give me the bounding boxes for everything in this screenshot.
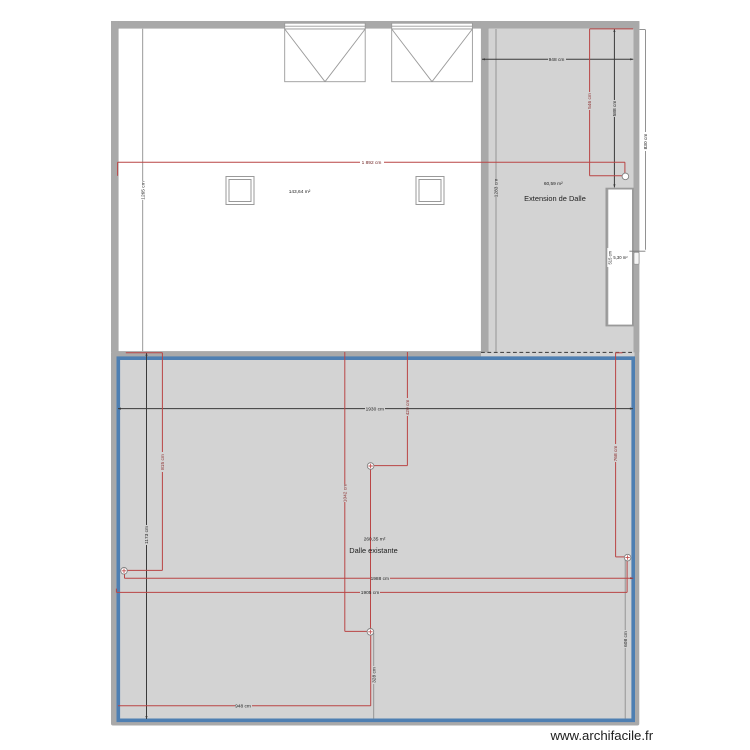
- svg-text:588 cm: 588 cm: [612, 101, 618, 117]
- svg-text:1265 cm: 1265 cm: [140, 181, 146, 199]
- svg-text:1173 cm: 1173 cm: [144, 526, 150, 544]
- svg-text:www.archifacile.fr: www.archifacile.fr: [550, 728, 654, 743]
- svg-text:60,59 m²: 60,59 m²: [544, 181, 563, 187]
- svg-text:1042 cm: 1042 cm: [342, 484, 348, 502]
- svg-text:1 892 cm: 1 892 cm: [362, 160, 382, 166]
- svg-text:Dalle existante: Dalle existante: [349, 546, 397, 555]
- svg-text:948 cm: 948 cm: [235, 703, 251, 709]
- svg-text:Extension de Dalle: Extension de Dalle: [524, 194, 586, 203]
- svg-text:815 cm: 815 cm: [160, 454, 166, 470]
- svg-text:260,35 m²: 260,35 m²: [364, 537, 386, 543]
- svg-text:768 cm: 768 cm: [613, 446, 619, 462]
- svg-text:948 cm: 948 cm: [549, 57, 565, 63]
- svg-text:1988 cm: 1988 cm: [371, 576, 389, 582]
- svg-text:830 cm: 830 cm: [643, 134, 649, 150]
- svg-text:420 cm: 420 cm: [405, 400, 411, 416]
- svg-text:1930 cm: 1930 cm: [366, 406, 384, 412]
- svg-text:5,30 m²: 5,30 m²: [613, 255, 628, 260]
- svg-text:1905 cm: 1905 cm: [361, 590, 379, 596]
- svg-text:1283 cm: 1283 cm: [494, 179, 500, 197]
- svg-text:515 cm: 515 cm: [607, 250, 612, 264]
- svg-text:328 cm: 328 cm: [371, 667, 377, 683]
- svg-text:143,64 m²: 143,64 m²: [289, 189, 311, 195]
- svg-text:608 cm: 608 cm: [623, 631, 629, 647]
- svg-text:546 cm: 546 cm: [587, 93, 593, 109]
